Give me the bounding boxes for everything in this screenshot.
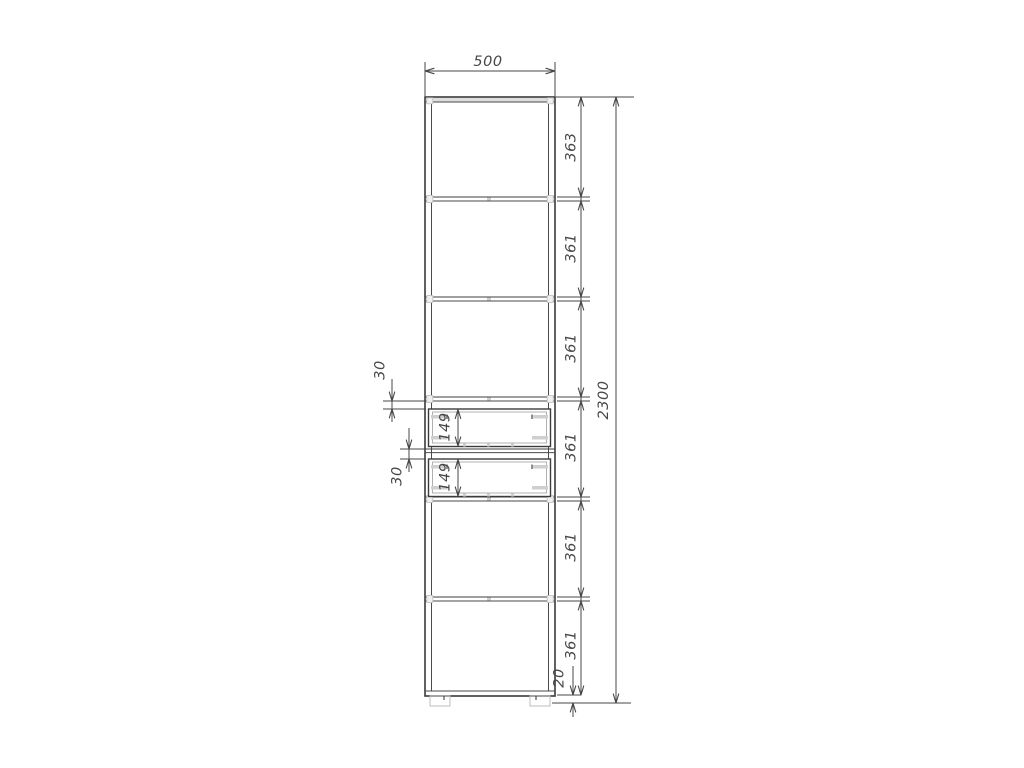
feet [430, 696, 550, 706]
cam-fitting [427, 596, 433, 603]
left-foot [430, 696, 450, 706]
dim-label-segment-6: 361 [564, 630, 580, 659]
drawer-bottom-mark [487, 494, 490, 497]
drawing-canvas: 500 363 361 361 361 361 361 [0, 0, 1024, 768]
dimension-segment-chain: 363 361 361 361 361 361 [555, 97, 634, 695]
cam-fitting [427, 196, 433, 203]
right-foot [530, 696, 550, 706]
dim-label-segment-5: 361 [564, 532, 580, 561]
dimension-gap-bottom-drawer: 30 [390, 428, 427, 486]
dim-label-top-drawer-height: 149 [438, 412, 454, 441]
drawer-slide-rail [532, 415, 548, 419]
dim-label-width: 500 [473, 54, 502, 70]
shelf-dowel-mark [487, 198, 491, 201]
rail-end-mark [531, 465, 533, 470]
dimension-width: 500 [425, 54, 555, 96]
cam-fitting [547, 596, 553, 603]
shelf-dowel-mark [487, 398, 491, 401]
dim-label-base-height: 20 [552, 668, 568, 687]
shelf-dowel-mark [487, 298, 491, 301]
cam-fittings [427, 98, 553, 603]
cam-fitting [427, 396, 433, 403]
cam-fitting [547, 98, 553, 104]
dim-label-total-height: 2300 [596, 381, 612, 420]
dim-label-segment-4: 361 [564, 432, 580, 461]
drawer-bottom-mark [487, 444, 490, 447]
cam-fitting [547, 196, 553, 203]
dim-label-segment-3: 361 [564, 333, 580, 362]
cam-fitting [427, 98, 433, 104]
rail-end-mark [531, 415, 533, 420]
cam-fitting [547, 296, 553, 303]
drawer-bottom-mark [511, 444, 514, 447]
dim-label-gap-top: 30 [373, 360, 389, 379]
cabinet-carcass [425, 97, 555, 706]
dim-label-bottom-drawer-height: 149 [438, 462, 454, 491]
cam-fitting [427, 296, 433, 303]
dim-label-segment-1: 363 [564, 132, 580, 161]
drawer-bottom-mark [463, 444, 466, 447]
dimension-gap-top-drawer: 30 [373, 360, 427, 422]
drawer-bottom-mark [463, 494, 466, 497]
dim-label-segment-2: 361 [564, 233, 580, 262]
top-panel-fill [426, 98, 554, 102]
dimension-total-height: 2300 [552, 97, 631, 703]
drawer-bottom-mark [511, 494, 514, 497]
drawer-slide-rail [532, 465, 548, 469]
drawer-divider-rail [425, 449, 555, 453]
drawer-slide-rail [532, 486, 548, 490]
cam-fitting [547, 396, 553, 403]
drawer-slide-rail [532, 436, 548, 440]
shelf-dowel-mark [487, 498, 491, 501]
dim-label-gap-bottom: 30 [390, 466, 406, 485]
cabinet-dimension-drawing: 500 363 361 361 361 361 361 [0, 0, 1024, 768]
shelf-dowel-mark [487, 598, 491, 601]
